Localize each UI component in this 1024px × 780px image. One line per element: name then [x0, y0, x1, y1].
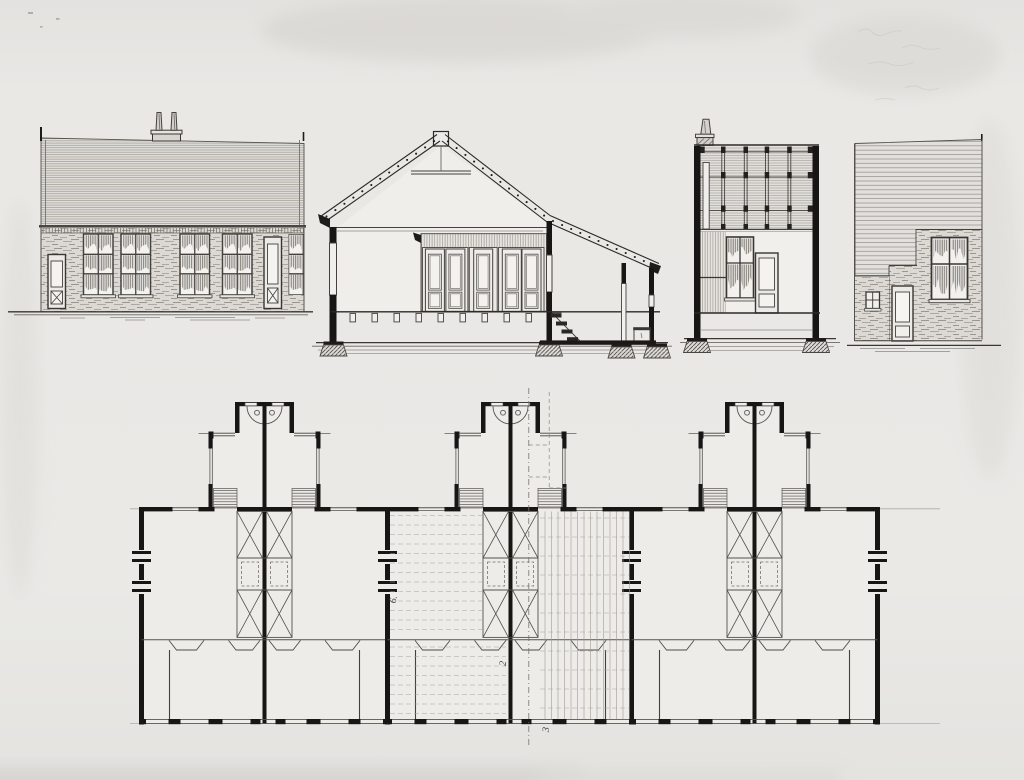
svg-text:2: 2 [498, 661, 509, 667]
svg-text:3: 3 [541, 727, 552, 734]
